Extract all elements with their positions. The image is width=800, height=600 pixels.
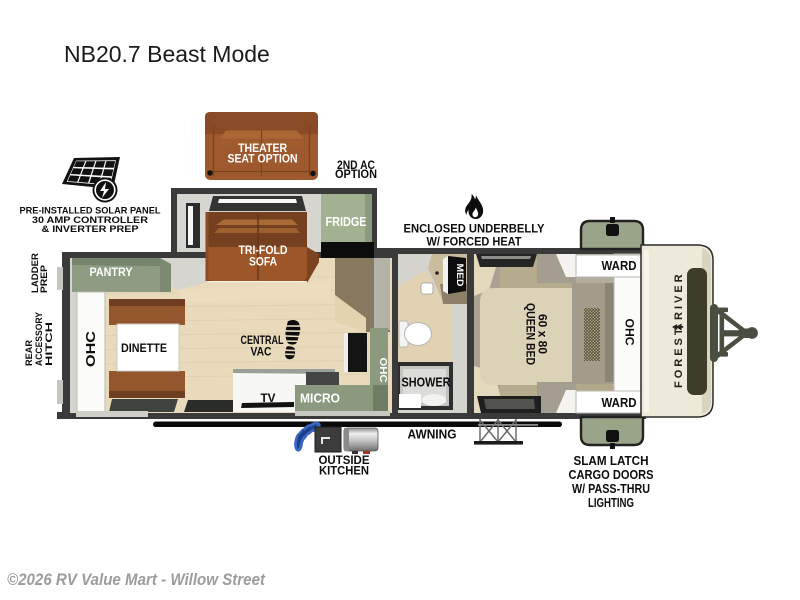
svg-text:SOFA: SOFA: [249, 257, 277, 269]
svg-text:QUEEN BED: QUEEN BED: [524, 303, 538, 365]
svg-text:ENCLOSED UNDERBELLY: ENCLOSED UNDERBELLY: [404, 222, 545, 236]
svg-text:KITCHEN: KITCHEN: [319, 464, 369, 478]
svg-text:FOREST: FOREST: [673, 325, 685, 388]
svg-text:SEAT OPTION: SEAT OPTION: [228, 152, 298, 166]
svg-text:TV: TV: [261, 391, 276, 405]
svg-text:©2026 RV Value Mart - Willow S: ©2026 RV Value Mart - Willow Street: [7, 570, 266, 589]
svg-text:& INVERTER PREP: & INVERTER PREP: [42, 224, 139, 234]
svg-text:TRI-FOLD: TRI-FOLD: [239, 245, 288, 257]
svg-text:CARGO DOORS: CARGO DOORS: [569, 468, 654, 482]
svg-text:WARD: WARD: [602, 258, 637, 273]
svg-text:MICRO: MICRO: [300, 392, 340, 406]
svg-text:OHC: OHC: [377, 358, 388, 383]
svg-text:WARD: WARD: [602, 395, 637, 410]
svg-text:MED: MED: [454, 264, 465, 287]
svg-text:RIVER: RIVER: [673, 271, 685, 320]
svg-text:SLAM LATCH: SLAM LATCH: [574, 454, 649, 468]
svg-text:W/ FORCED HEAT: W/ FORCED HEAT: [427, 235, 523, 249]
svg-text:PREP: PREP: [39, 264, 50, 293]
svg-text:OPTION: OPTION: [335, 169, 377, 181]
svg-text:NB20.7 Beast Mode: NB20.7 Beast Mode: [64, 41, 270, 67]
svg-text:VAC: VAC: [251, 345, 272, 359]
svg-text:OHC: OHC: [623, 319, 637, 346]
svg-text:OHC: OHC: [83, 330, 98, 367]
svg-text:W/ PASS-THRU: W/ PASS-THRU: [572, 482, 650, 496]
svg-text:PANTRY: PANTRY: [90, 265, 133, 279]
svg-text:DINETTE: DINETTE: [121, 341, 167, 355]
svg-text:HITCH: HITCH: [44, 322, 55, 366]
svg-text:AWNING: AWNING: [408, 427, 457, 442]
svg-text:LIGHTING: LIGHTING: [588, 496, 634, 510]
svg-text:SHOWER: SHOWER: [402, 376, 451, 390]
svg-text:FRIDGE: FRIDGE: [326, 215, 367, 229]
